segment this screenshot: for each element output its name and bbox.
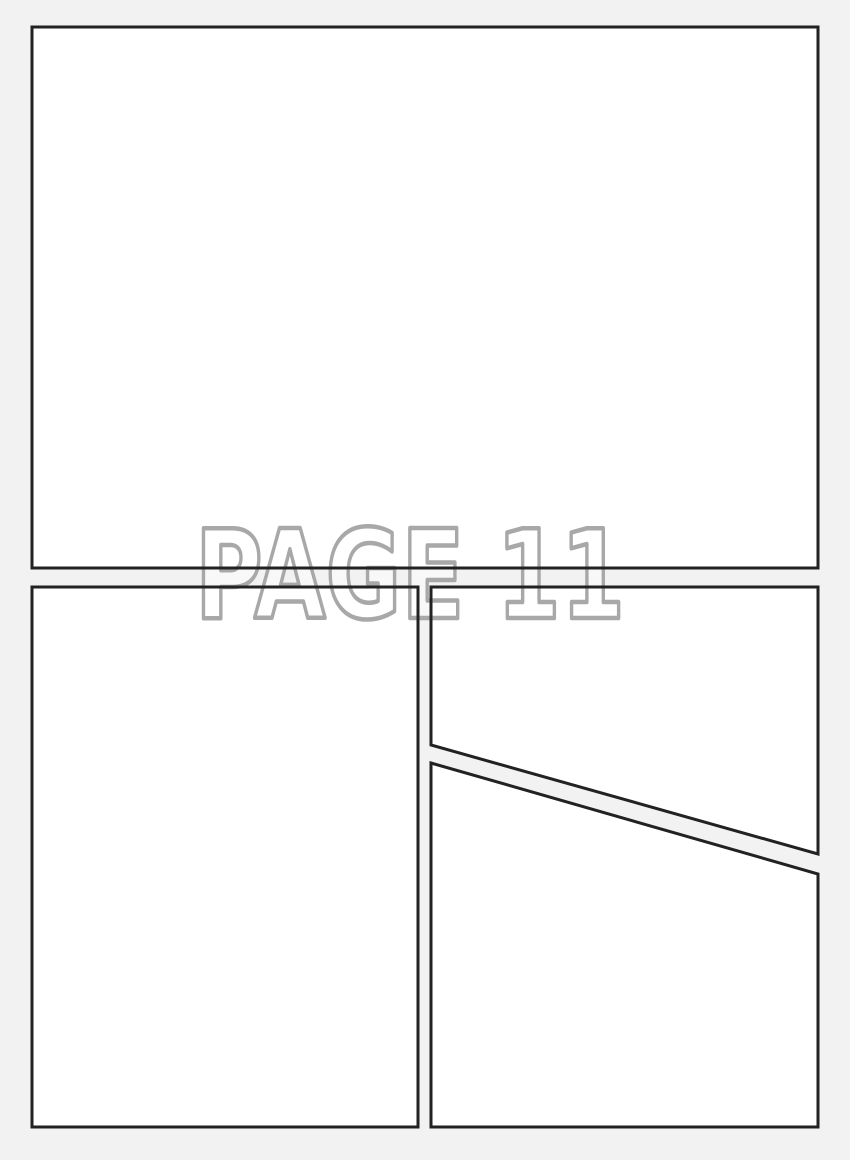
comic-page-canvas: PAGE 11 bbox=[0, 0, 850, 1160]
comic-page-template: PAGE 11 bbox=[0, 0, 850, 1160]
panel-2-fill bbox=[32, 587, 418, 1127]
panel-1-fill bbox=[32, 27, 818, 568]
page-number-watermark: PAGE 11 bbox=[195, 505, 625, 648]
